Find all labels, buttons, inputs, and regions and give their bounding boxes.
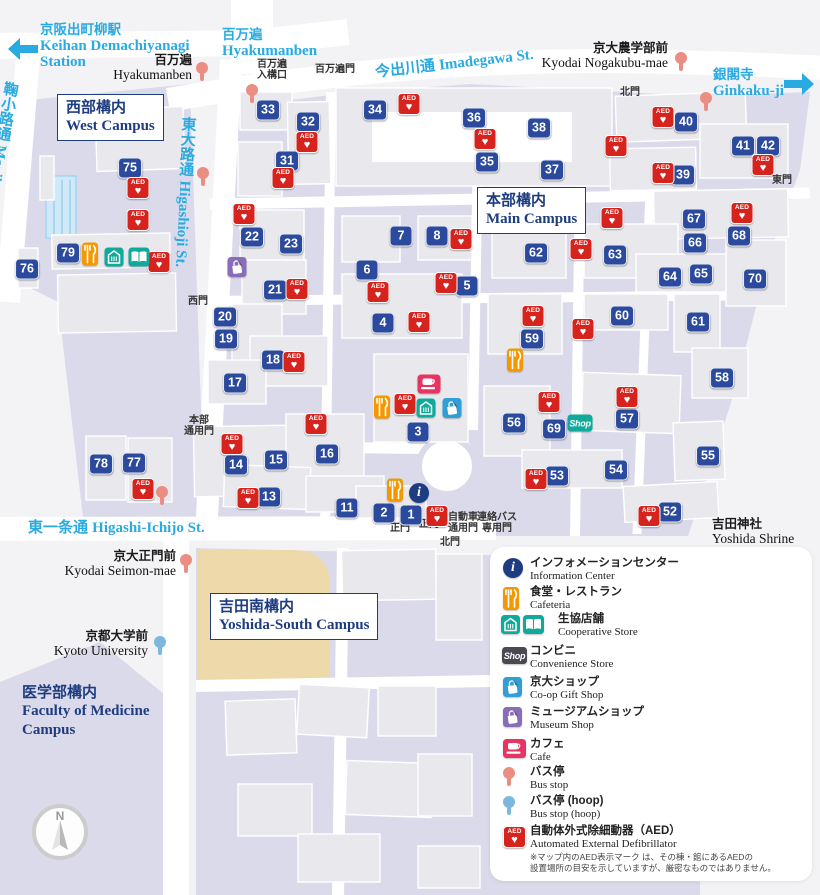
aed-icon: AED♥ (394, 393, 417, 415)
legend-item-jp: 生協店舗 (558, 613, 604, 625)
gate-label-line: 北門 (620, 88, 640, 99)
bus-stop-label: 京都大学前Kyoto University (0, 629, 148, 658)
bus-stop-icon (700, 92, 712, 111)
legend-item-en: Bus stop (hoop) (530, 808, 600, 820)
building-marker-59: 59 (520, 329, 544, 350)
aed-icon-text: ♥ (368, 290, 389, 300)
building-marker-61: 61 (686, 312, 710, 333)
cafe-icon (503, 739, 526, 758)
building-marker-19: 19 (214, 329, 238, 350)
cafe-icon (418, 375, 441, 394)
building-marker-75: 75 (118, 158, 142, 179)
area-link-hyakumanben: 百万遍Hyakumanben (222, 27, 317, 59)
legend-item-en: Museum Shop (530, 719, 594, 731)
aed-icon: AED♥ (233, 203, 256, 225)
building-marker-39: 39 (671, 165, 695, 186)
aed-icon-text: ♥ (475, 137, 496, 147)
legend-item-jp: コンビニ (530, 645, 576, 657)
gate-label-line: 百万遍 (257, 60, 287, 71)
street-label-higashi-ichijo: 東一条通 Higashi-Ichijo St. (28, 516, 205, 537)
area-link-en: Hyakumanben (222, 43, 317, 59)
legend-item-en: Cafeteria (530, 599, 570, 611)
landmark-en: Yoshida Shrine (712, 531, 794, 546)
gate-label-line: 百万遍門 (315, 65, 355, 76)
campus-jp: 本部構内 (486, 191, 577, 210)
legend-item-jp: カフェ (530, 738, 565, 750)
street-en: Marikoji St. (0, 144, 9, 224)
building-marker-57: 57 (615, 409, 639, 430)
street-jp: 東一条通 (28, 519, 92, 536)
building-marker-6: 6 (356, 260, 379, 281)
legend-item-jp: ミュージアムショップ (530, 706, 644, 718)
building-marker-77: 77 (122, 453, 146, 474)
bus-stop-icon-stem (679, 63, 683, 71)
aed-icon: AED♥ (522, 305, 545, 327)
building-marker-15: 15 (264, 450, 288, 471)
building-marker-34: 34 (363, 100, 387, 121)
aed-icon-text: ♥ (573, 327, 594, 337)
aed-icon-text: ♥ (653, 115, 674, 125)
legend-aed-note: ※マップ内のAED表示マーク は、その棟・館にあるAEDの (530, 852, 753, 863)
building-marker-5: 5 (456, 276, 479, 297)
aed-icon-text: ♥ (399, 102, 420, 112)
aed-icon: AED♥ (398, 93, 421, 115)
aed-icon: AED♥ (132, 478, 155, 500)
aed-icon: AED♥ (538, 391, 561, 413)
bus-stop-icon (197, 167, 209, 186)
legend-panel: iインフォメーションセンターInformation Center食堂・レストラン… (490, 547, 812, 881)
street-label-higashioji: 東大路通 Higashioji St. (170, 116, 199, 268)
bus-stop-icon (154, 636, 166, 655)
gate-label: 本部通用門 (184, 416, 214, 437)
aed-icon-text: ♥ (571, 247, 592, 257)
legend-item-en: Automated External Defibrillator (530, 838, 677, 850)
street-jp: 鞠小路通 (0, 80, 20, 146)
building-marker-13: 13 (257, 487, 281, 508)
gate-label: 連絡バス専用門 (477, 513, 517, 534)
campus-label-medicine: 医学部構内Faculty of MedicineCampus (22, 683, 149, 740)
aed-icon: AED♥ (572, 318, 595, 340)
campus-en: Campus (22, 721, 149, 740)
aed-icon-text: ♥ (284, 360, 305, 370)
building-marker-33: 33 (256, 100, 280, 121)
legend-item-en: Convenience Store (530, 658, 613, 670)
street-jp: 東大路通 (177, 116, 197, 181)
gate-label: 東門 (772, 176, 792, 187)
building-marker-60: 60 (610, 306, 634, 327)
aed-icon: AED♥ (237, 487, 260, 509)
building-marker-23: 23 (279, 234, 303, 255)
building-marker-32: 32 (296, 112, 320, 133)
building-marker-70: 70 (743, 269, 767, 290)
coop-book-icon (523, 615, 544, 634)
building-marker-20: 20 (213, 307, 237, 328)
aed-icon-text: ♥ (222, 442, 243, 452)
campus-jp: 吉田南構内 (219, 597, 369, 616)
campus-en: Main Campus (486, 210, 577, 229)
building-marker-65: 65 (689, 264, 713, 285)
bus-stop-label: 百万遍Hyakumanben (0, 53, 192, 82)
gate-label-line: 東門 (772, 176, 792, 187)
convenience-store-icon: Shop (502, 647, 527, 664)
giftshop-icon (443, 398, 462, 418)
aed-icon: AED♥ (570, 238, 593, 260)
aed-icon: AED♥ (127, 209, 150, 231)
building-marker-76: 76 (15, 259, 39, 280)
building-marker-36: 36 (462, 108, 486, 129)
coop_book-icon (129, 248, 150, 267)
arrow-right-icon (784, 73, 814, 100)
coop_store-icon (105, 248, 124, 267)
aed-icon-text: ♥ (653, 171, 674, 181)
aed-icon-text: ♥ (504, 835, 525, 845)
aed-icon: AED♥ (474, 128, 497, 150)
legend-item-jp: 食堂・レストラン (530, 586, 622, 598)
building-marker-52: 52 (658, 502, 682, 523)
aed-icon-text: ♥ (287, 287, 308, 297)
bus-stop-en: Kyoto University (0, 643, 148, 658)
campus-label-west: 西部構内West Campus (57, 94, 164, 141)
bus-stop-icon-stem (160, 497, 164, 505)
aed-icon-text: ♥ (133, 487, 154, 497)
bus-icon (503, 767, 515, 786)
street-en: Higashi-Ichijo St. (92, 520, 205, 536)
gate-label: 北門 (620, 88, 640, 99)
cafeteria-icon (507, 349, 523, 372)
campus-en: Faculty of Medicine (22, 702, 149, 721)
aed-icon: AED♥ (601, 207, 624, 229)
campus-jp: 医学部構内 (22, 683, 149, 702)
cafeteria-icon (387, 479, 403, 502)
aed-icon-text: ♥ (539, 400, 560, 410)
building-marker-58: 58 (710, 368, 734, 389)
bus-stop-en: Hyakumanben (0, 67, 192, 82)
building-marker-17: 17 (223, 373, 247, 394)
bus-stop-label: 京大正門前Kyodai Seimon-mae (0, 549, 176, 578)
aed-icon-text: ♥ (602, 216, 623, 226)
building-marker-35: 35 (475, 152, 499, 173)
aed-icon: AED♥ (652, 162, 675, 184)
aed-icon: AED♥ (435, 272, 458, 294)
aed-icon-text: ♥ (732, 211, 753, 221)
aed-icon-text: ♥ (238, 496, 259, 506)
building-marker-69: 69 (542, 419, 566, 440)
aed-icon-text: ♥ (526, 477, 547, 487)
aed-icon: AED♥ (450, 228, 473, 250)
building-marker-54: 54 (604, 460, 628, 481)
aed-icon-text: ♥ (234, 212, 255, 222)
compass: N (31, 803, 89, 866)
aed-icon: AED♥ (221, 433, 244, 455)
building-marker-79: 79 (56, 243, 80, 264)
gate-label: 自動車通用門 (448, 513, 478, 534)
legend-item-jp: インフォメーションセンター (530, 557, 679, 569)
landmark-jp: 吉田神社 (712, 517, 794, 531)
street-en: Higashioji St. (172, 180, 193, 267)
building-marker-67: 67 (682, 209, 706, 230)
bus-stop-en: Kyodai Nogakubu-mae (448, 55, 668, 70)
aed-icon: AED♥ (638, 505, 661, 527)
aed-icon-text: ♥ (128, 186, 149, 196)
building-marker-55: 55 (696, 446, 720, 467)
gate-label-line: 通用門 (184, 427, 214, 438)
hoop-icon (503, 796, 515, 815)
legend-aed-note: 設置場所の目安を示していますが、厳密なものではありません。 (530, 863, 776, 874)
cafeteria-icon (503, 587, 519, 610)
gate-label: 西門 (188, 297, 208, 308)
legend-item-en: Co-op Gift Shop (530, 689, 603, 701)
area-link-en: Keihan Demachiyanagi (40, 38, 190, 54)
aed-icon: AED♥ (525, 468, 548, 490)
bus-stop-icon-stem (507, 778, 511, 786)
gate-label-line: 入構口 (257, 71, 287, 82)
campus-en: Yoshida-South Campus (219, 616, 369, 635)
info-icon: i (503, 558, 523, 578)
building-marker-1: 1 (400, 505, 423, 526)
gate-label-line: 通用門 (448, 524, 478, 535)
bus-stop-jp: 京大農学部前 (448, 41, 668, 55)
aed-icon: AED♥ (731, 202, 754, 224)
aed-icon-text: ♥ (306, 422, 327, 432)
gate-label-line: 本部 (184, 416, 214, 427)
aed-icon: AED♥ (305, 413, 328, 435)
aed-icon-text: ♥ (523, 314, 544, 324)
bus-stop-icon (675, 52, 687, 71)
aed-icon-text: ♥ (753, 163, 774, 173)
gate-label: 百万遍門 (315, 65, 355, 76)
aed-icon: AED♥ (283, 351, 306, 373)
legend-item-en: Bus stop (530, 779, 568, 791)
building-marker-16: 16 (315, 444, 339, 465)
campus-en: West Campus (66, 117, 155, 136)
giftshop-icon (503, 677, 522, 697)
bus-stop-icon-stem (201, 178, 205, 186)
aed-icon: AED♥ (616, 386, 639, 408)
bus-stop-icon (180, 554, 192, 573)
gate-label-line: 自動車 (448, 513, 478, 524)
cafeteria-icon (374, 396, 390, 419)
aed-icon: AED♥ (605, 135, 628, 157)
area-link-jp: 銀閣寺 (713, 67, 784, 83)
bus-stop-jp: 百万遍 (0, 53, 192, 67)
gate-label-line: 正門 (390, 524, 410, 535)
bus-stop-icon (156, 486, 168, 505)
bus-stop-jp: 京大正門前 (0, 549, 176, 563)
building-marker-53: 53 (545, 466, 569, 487)
shop-icon: Shop (568, 415, 593, 432)
building-marker-7: 7 (390, 226, 413, 247)
aed-icon-text: ♥ (395, 402, 416, 412)
gate-label: 北門 (440, 538, 460, 549)
aed-icon-text: ♥ (427, 514, 448, 524)
building-marker-56: 56 (502, 413, 526, 434)
building-marker-18: 18 (261, 350, 285, 371)
gate-label-line: 専用門 (477, 524, 517, 535)
aed-icon-text: ♥ (617, 395, 638, 405)
legend-item-jp: バス停 (530, 766, 565, 778)
building-marker-3: 3 (407, 422, 430, 443)
building-marker-2: 2 (373, 503, 396, 524)
building-marker-62: 62 (524, 243, 548, 264)
legend-item-en: Cooperative Store (558, 626, 638, 638)
building-marker-22: 22 (240, 227, 264, 248)
area-link-ginkakuji: 銀閣寺Ginkaku-ji (713, 67, 784, 99)
aed-icon: AED♥ (408, 311, 431, 333)
bus-stop-label: 京大農学部前Kyodai Nogakubu-mae (448, 41, 668, 70)
building-marker-37: 37 (540, 160, 564, 181)
building-marker-4: 4 (372, 313, 395, 334)
building-marker-66: 66 (683, 233, 707, 254)
building-marker-21: 21 (263, 280, 287, 301)
aed-icon-text: ♥ (606, 144, 627, 154)
area-link-en: Ginkaku-ji (713, 83, 784, 99)
building-marker-14: 14 (224, 455, 248, 476)
bus-stop-icon-stem (507, 807, 511, 815)
cafeteria-icon (82, 243, 98, 266)
bus-stop-en: Kyodai Seimon-mae (0, 563, 176, 578)
building-marker-63: 63 (603, 245, 627, 266)
bus-stop-icon (196, 62, 208, 81)
aed-icon-text: ♥ (128, 218, 149, 228)
aed-icon-text: ♥ (639, 514, 660, 524)
bus-stop-icon-stem (704, 103, 708, 111)
aed-icon: AED♥ (127, 177, 150, 199)
gate-label-line: 連絡バス (477, 513, 517, 524)
building-marker-68: 68 (727, 226, 751, 247)
landmark-label-yoshida-shrine: 吉田神社Yoshida Shrine (712, 517, 794, 546)
aed-icon: AED♥ (367, 281, 390, 303)
gate-label-line: 北門 (440, 538, 460, 549)
building-marker-78: 78 (89, 454, 113, 475)
building-marker-11: 11 (335, 498, 358, 519)
legend-item-jp: 京大ショップ (530, 676, 599, 688)
coop-store-icon (501, 615, 520, 634)
bus-stop-icon-stem (200, 73, 204, 81)
legend-item-en: Cafe (530, 751, 551, 763)
museum-icon (503, 707, 522, 727)
legend-item-jp: バス停 (hoop) (530, 795, 603, 807)
bus-stop-icon-stem (158, 647, 162, 655)
aed-icon-text: ♥ (436, 281, 457, 291)
gate-label-line: 西門 (188, 297, 208, 308)
building-marker-41: 41 (731, 136, 755, 157)
aed-icon-text: ♥ (409, 320, 430, 330)
aed-icon: AED♥ (426, 505, 449, 527)
aed-icon: AED♥ (503, 826, 526, 848)
museum-icon (228, 257, 247, 277)
gate-label: 百万遍入構口 (257, 60, 287, 81)
aed-icon: AED♥ (752, 154, 775, 176)
gate-label: 正門 (390, 524, 410, 535)
aed-icon: AED♥ (652, 106, 675, 128)
aed-icon: AED♥ (272, 167, 295, 189)
building-marker-38: 38 (527, 118, 551, 139)
aed-icon: AED♥ (296, 131, 319, 153)
aed-icon-text: ♥ (273, 176, 294, 186)
building-marker-64: 64 (658, 267, 682, 288)
aed-icon: AED♥ (286, 278, 309, 300)
area-link-jp: 百万遍 (222, 27, 317, 43)
aed-icon: AED♥ (148, 251, 171, 273)
building-marker-8: 8 (426, 226, 449, 247)
legend-item-jp: 自動体外式除細動器（AED） (530, 825, 681, 837)
bus-stop-jp: 京都大学前 (0, 629, 148, 643)
aed-icon-text: ♥ (149, 260, 170, 270)
legend-item-en: Information Center (530, 570, 615, 582)
kyoto-university-campus-map: 京阪出町柳駅Keihan DemachiyanagiStation百万遍Hyak… (0, 0, 820, 895)
campus-jp: 西部構内 (66, 98, 155, 117)
aed-icon-text: ♥ (297, 140, 318, 150)
street-label-marikoji: 鞠小路通 Marikoji St. (0, 80, 22, 224)
area-link-jp: 京阪出町柳駅 (40, 22, 190, 38)
street-jp: 今出川通 (374, 57, 440, 81)
aed-icon-text: ♥ (451, 237, 472, 247)
bus-stop-icon-stem (184, 565, 188, 573)
bus-stop-icon-stem (250, 95, 254, 103)
campus-label-main: 本部構内Main Campus (477, 187, 586, 234)
coop_store-icon (417, 399, 436, 418)
info-icon: i (409, 483, 429, 503)
building-marker-40: 40 (674, 112, 698, 133)
campus-label-yoshida-south: 吉田南構内Yoshida-South Campus (210, 593, 378, 640)
